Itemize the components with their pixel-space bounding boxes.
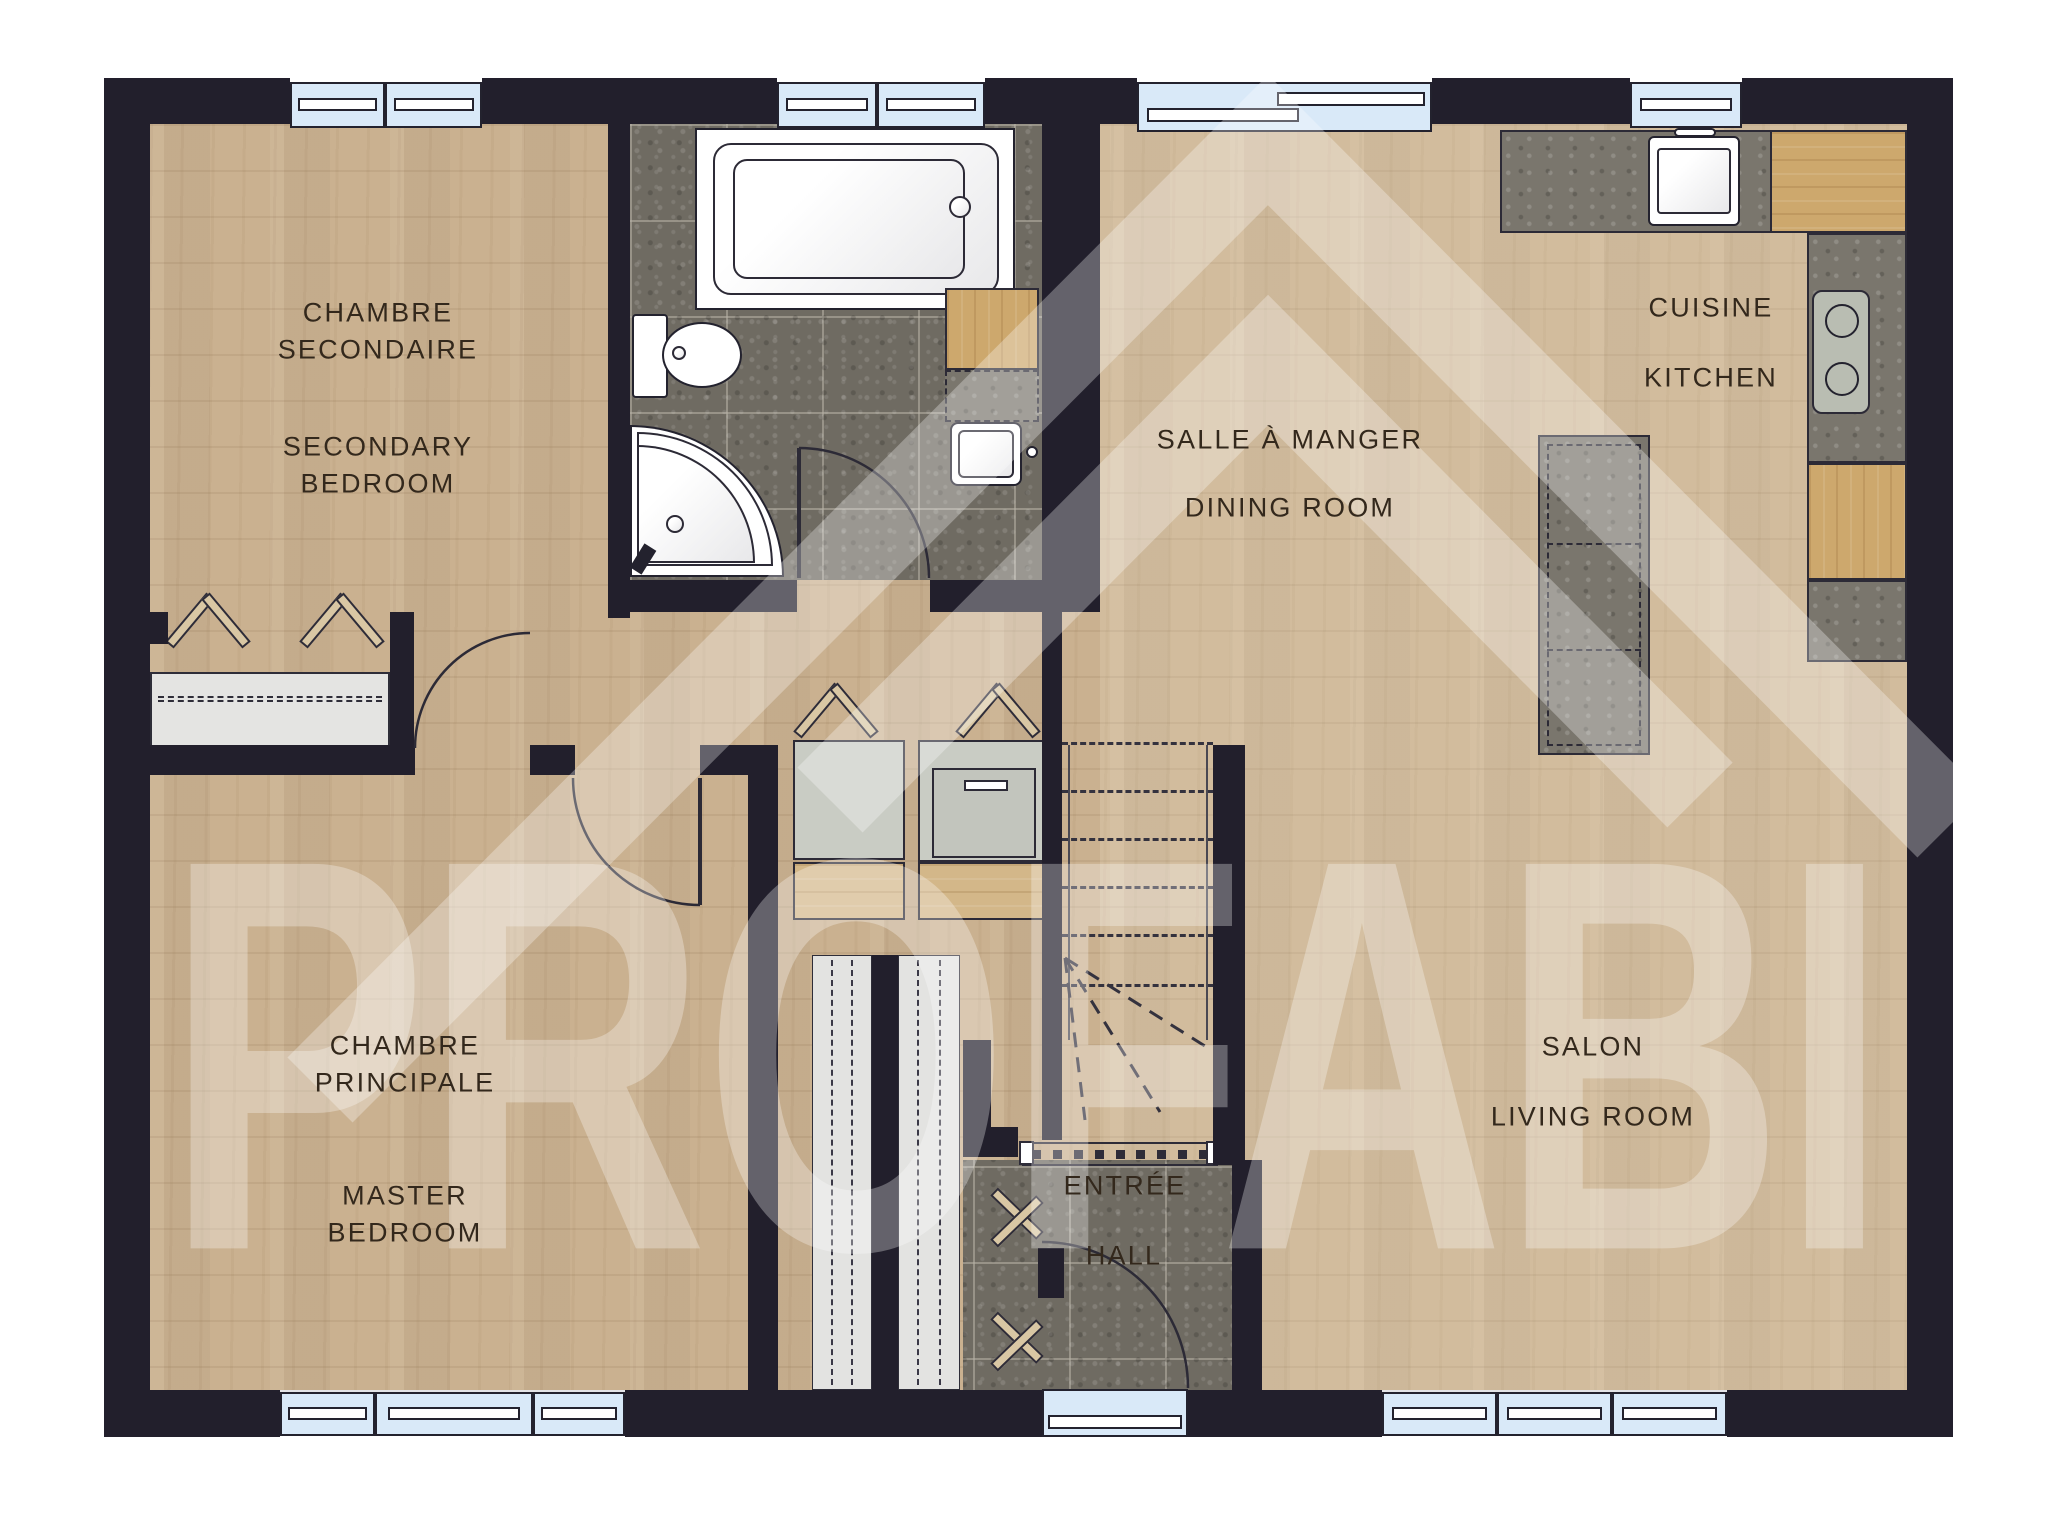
window <box>1630 82 1742 128</box>
window <box>375 1392 533 1436</box>
stair-landing-edge <box>1062 984 1213 987</box>
laundry-appliance <box>918 740 1048 862</box>
wall <box>1232 1160 1262 1390</box>
room-label-secondary-bedroom-en: BEDROOM <box>301 471 456 498</box>
wall <box>1042 612 1062 1140</box>
wall <box>1907 78 1953 1437</box>
wall <box>608 124 630 618</box>
island-divider <box>1547 649 1641 651</box>
kitchen-sink <box>1648 136 1740 226</box>
stair-railing <box>1022 1142 1218 1166</box>
room-label-kitchen-fr: CUISINE <box>1649 295 1774 322</box>
room-label-hall-en: HALL <box>1086 1243 1162 1270</box>
wardrobe-rod <box>158 696 382 702</box>
wall <box>930 580 1045 612</box>
window <box>290 82 385 128</box>
stair-stringer <box>1068 745 1070 1040</box>
front-door-slab <box>1048 1415 1182 1429</box>
stair-tread <box>1062 886 1213 889</box>
kitchen-island <box>1538 435 1650 755</box>
stair-tread <box>1062 838 1213 841</box>
front-door <box>1042 1389 1188 1437</box>
window <box>533 1392 625 1436</box>
vanity-cabinet <box>945 288 1039 370</box>
bathroom-sink-basin <box>958 430 1014 478</box>
room-label-secondary-bedroom-en: SECONDARY <box>283 434 473 461</box>
vanity-counter <box>945 370 1039 422</box>
toilet-flush-button <box>672 346 686 360</box>
island-inner-edge <box>1547 444 1641 746</box>
wall <box>748 745 778 1390</box>
room-label-dining-en: DINING ROOM <box>1185 495 1395 522</box>
wall <box>630 580 797 612</box>
basement-stairs-flight <box>812 955 872 1390</box>
stair-tread <box>1062 790 1213 793</box>
wall <box>1432 78 1630 124</box>
kitchen-cabinet-right <box>1807 463 1907 580</box>
room-label-kitchen-en: KITCHEN <box>1644 365 1778 392</box>
room-label-secondary-bedroom-fr: CHAMBRE <box>303 300 453 327</box>
wall <box>150 745 415 775</box>
appliance-handle <box>964 780 1008 791</box>
room-label-master-bedroom-fr: PRINCIPALE <box>315 1070 496 1097</box>
wall <box>1042 124 1100 612</box>
laundry-closet-unit <box>793 740 905 860</box>
bifold-door-icon <box>160 588 256 652</box>
bifold-door-icon <box>1002 1292 1066 1388</box>
closet-counter <box>918 862 1048 920</box>
bathtub <box>695 128 1015 310</box>
room-label-living-fr: SALON <box>1542 1034 1645 1061</box>
window <box>280 1392 375 1436</box>
wall <box>482 78 777 124</box>
basement-stairs-flight <box>898 955 960 1390</box>
room-label-dining-fr: SALLE À MANGER <box>1157 427 1423 454</box>
closet-counter <box>793 862 905 920</box>
room-label-master-bedroom-en: MASTER <box>342 1183 468 1210</box>
wall <box>104 78 150 1437</box>
kitchen-cabinet-top <box>1770 130 1907 233</box>
wardrobe <box>150 672 390 748</box>
island-divider <box>1547 543 1641 545</box>
bathroom-sink <box>950 422 1022 486</box>
bathtub-drain <box>949 196 971 218</box>
room-label-hall-fr: ENTRÉE <box>1064 1173 1187 1200</box>
shower-drain <box>666 515 684 533</box>
stair-stringer <box>1206 745 1208 1040</box>
stair-top-edge <box>1062 742 1213 745</box>
burner-icon <box>1825 362 1859 396</box>
window <box>1382 1392 1497 1436</box>
wall <box>963 1127 1018 1157</box>
railing-post <box>1019 1141 1034 1165</box>
room-label-living-en: LIVING ROOM <box>1491 1104 1695 1131</box>
room-label-master-bedroom-en: BEDROOM <box>328 1220 483 1247</box>
room-label-master-bedroom-fr: CHAMBRE <box>330 1033 480 1060</box>
floor-plan: PROFABI CHAMBRE SECONDAIRE SECONDARY BED… <box>0 0 2048 1536</box>
kitchen-counter-right-low <box>1807 580 1907 662</box>
toilet-bowl <box>662 322 742 388</box>
burner-icon <box>1825 304 1859 338</box>
bifold-door-icon <box>294 588 390 652</box>
window <box>777 82 877 128</box>
window <box>1612 1392 1727 1436</box>
wall <box>390 612 414 748</box>
window <box>877 82 985 128</box>
wall <box>985 78 1137 124</box>
wall <box>1213 745 1245 1165</box>
bifold-door-icon <box>788 678 884 742</box>
bathroom-faucet-icon <box>1026 446 1038 458</box>
patio-sliding-door <box>1137 82 1432 132</box>
wall <box>625 1390 1042 1437</box>
wall <box>963 1040 991 1140</box>
stair-tread <box>1062 934 1213 937</box>
window <box>1497 1392 1612 1436</box>
kitchen-sink-basin <box>1657 148 1731 214</box>
wall <box>150 612 168 644</box>
wall <box>530 745 575 775</box>
kitchen-faucet-icon <box>1674 128 1716 137</box>
wall <box>1038 1248 1064 1298</box>
cooktop <box>1812 290 1870 414</box>
stair-divider-wall <box>872 955 898 1390</box>
wall <box>1188 1390 1382 1437</box>
bifold-door-icon <box>950 678 1046 742</box>
bathtub-basin <box>733 159 965 279</box>
window <box>385 82 482 128</box>
room-label-secondary-bedroom-fr: SECONDAIRE <box>278 337 479 364</box>
